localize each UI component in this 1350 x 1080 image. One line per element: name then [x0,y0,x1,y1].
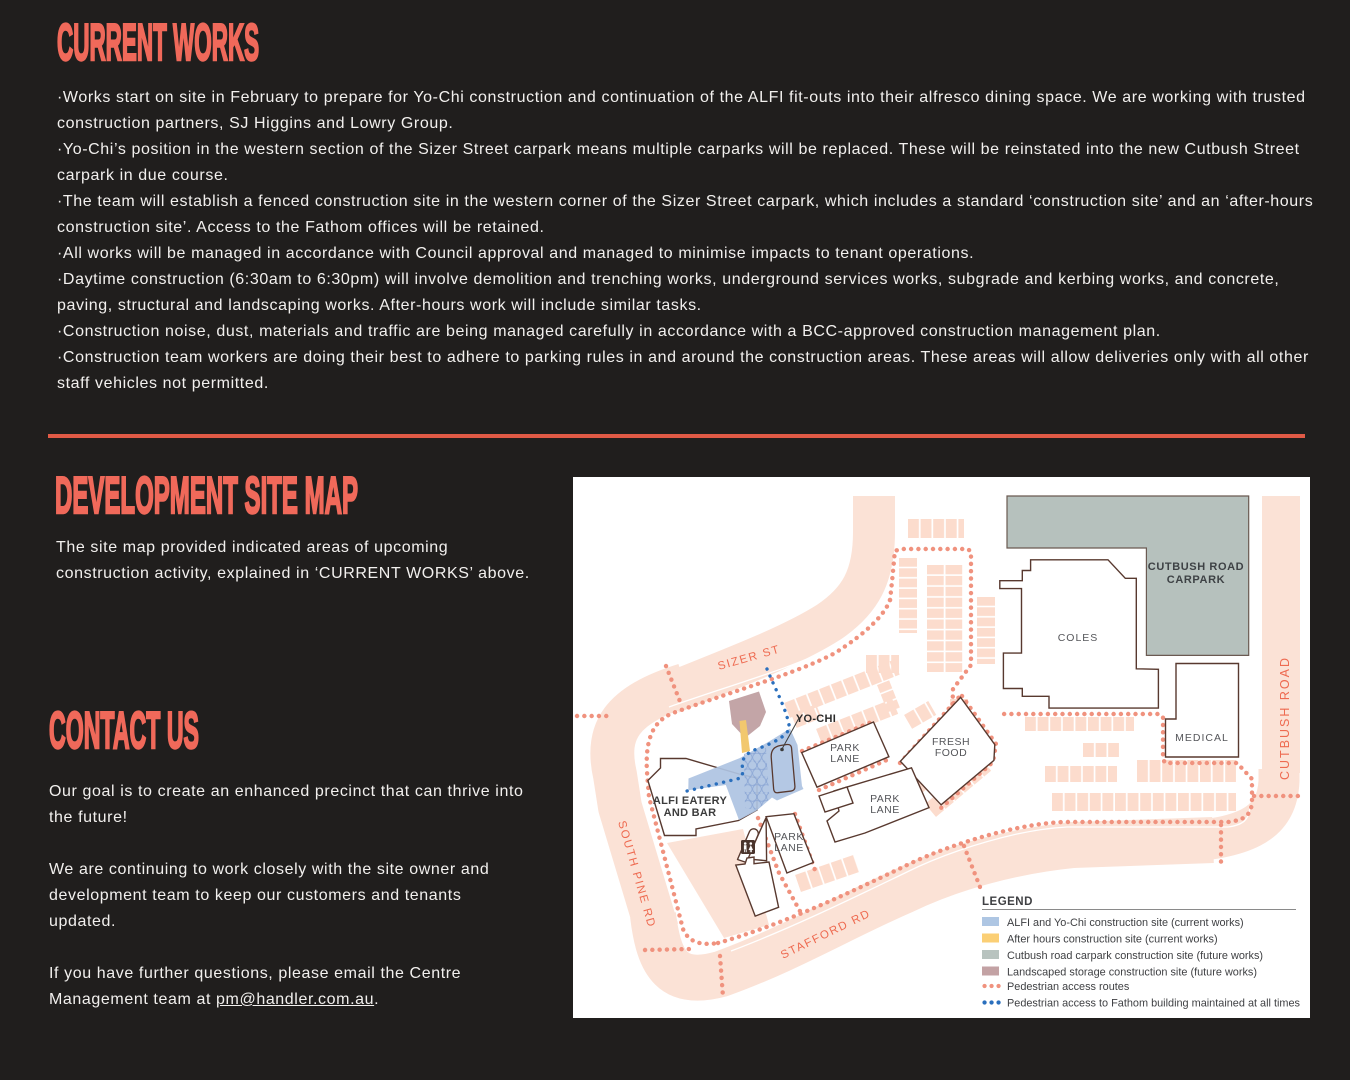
svg-text:Pedestrian access to Fathom bu: Pedestrian access to Fathom building mai… [1007,998,1301,1010]
svg-text:After hours construction site: After hours construction site (current w… [1007,934,1218,946]
svg-text:LANE: LANE [870,804,899,816]
svg-text:LANE: LANE [774,842,803,854]
svg-text:LANE: LANE [830,753,859,765]
svg-text:COLES: COLES [1058,632,1099,644]
svg-text:YO-CHI: YO-CHI [796,713,836,725]
svg-text:CUTBUSH ROAD: CUTBUSH ROAD [1278,656,1292,780]
svg-text:ALFI EATERY: ALFI EATERY [653,795,728,807]
svg-text:FOOD: FOOD [935,747,967,759]
svg-text:LEGEND: LEGEND [982,896,1033,908]
svg-text:CARPARK: CARPARK [1167,574,1225,586]
svg-text:Cutbush road carpark construct: Cutbush road carpark construction site (… [1007,950,1263,962]
svg-text:AND BAR: AND BAR [664,807,717,819]
svg-text:Pedestrian access routes: Pedestrian access routes [1007,981,1130,993]
svg-text:Landscaped storage constructio: Landscaped storage construction site (fu… [1007,967,1257,979]
svg-text:CUTBUSH ROAD: CUTBUSH ROAD [1148,561,1244,573]
svg-text:MEDICAL: MEDICAL [1175,732,1229,744]
svg-text:ALFI and Yo-Chi construction s: ALFI and Yo-Chi construction site (curre… [1007,917,1244,929]
